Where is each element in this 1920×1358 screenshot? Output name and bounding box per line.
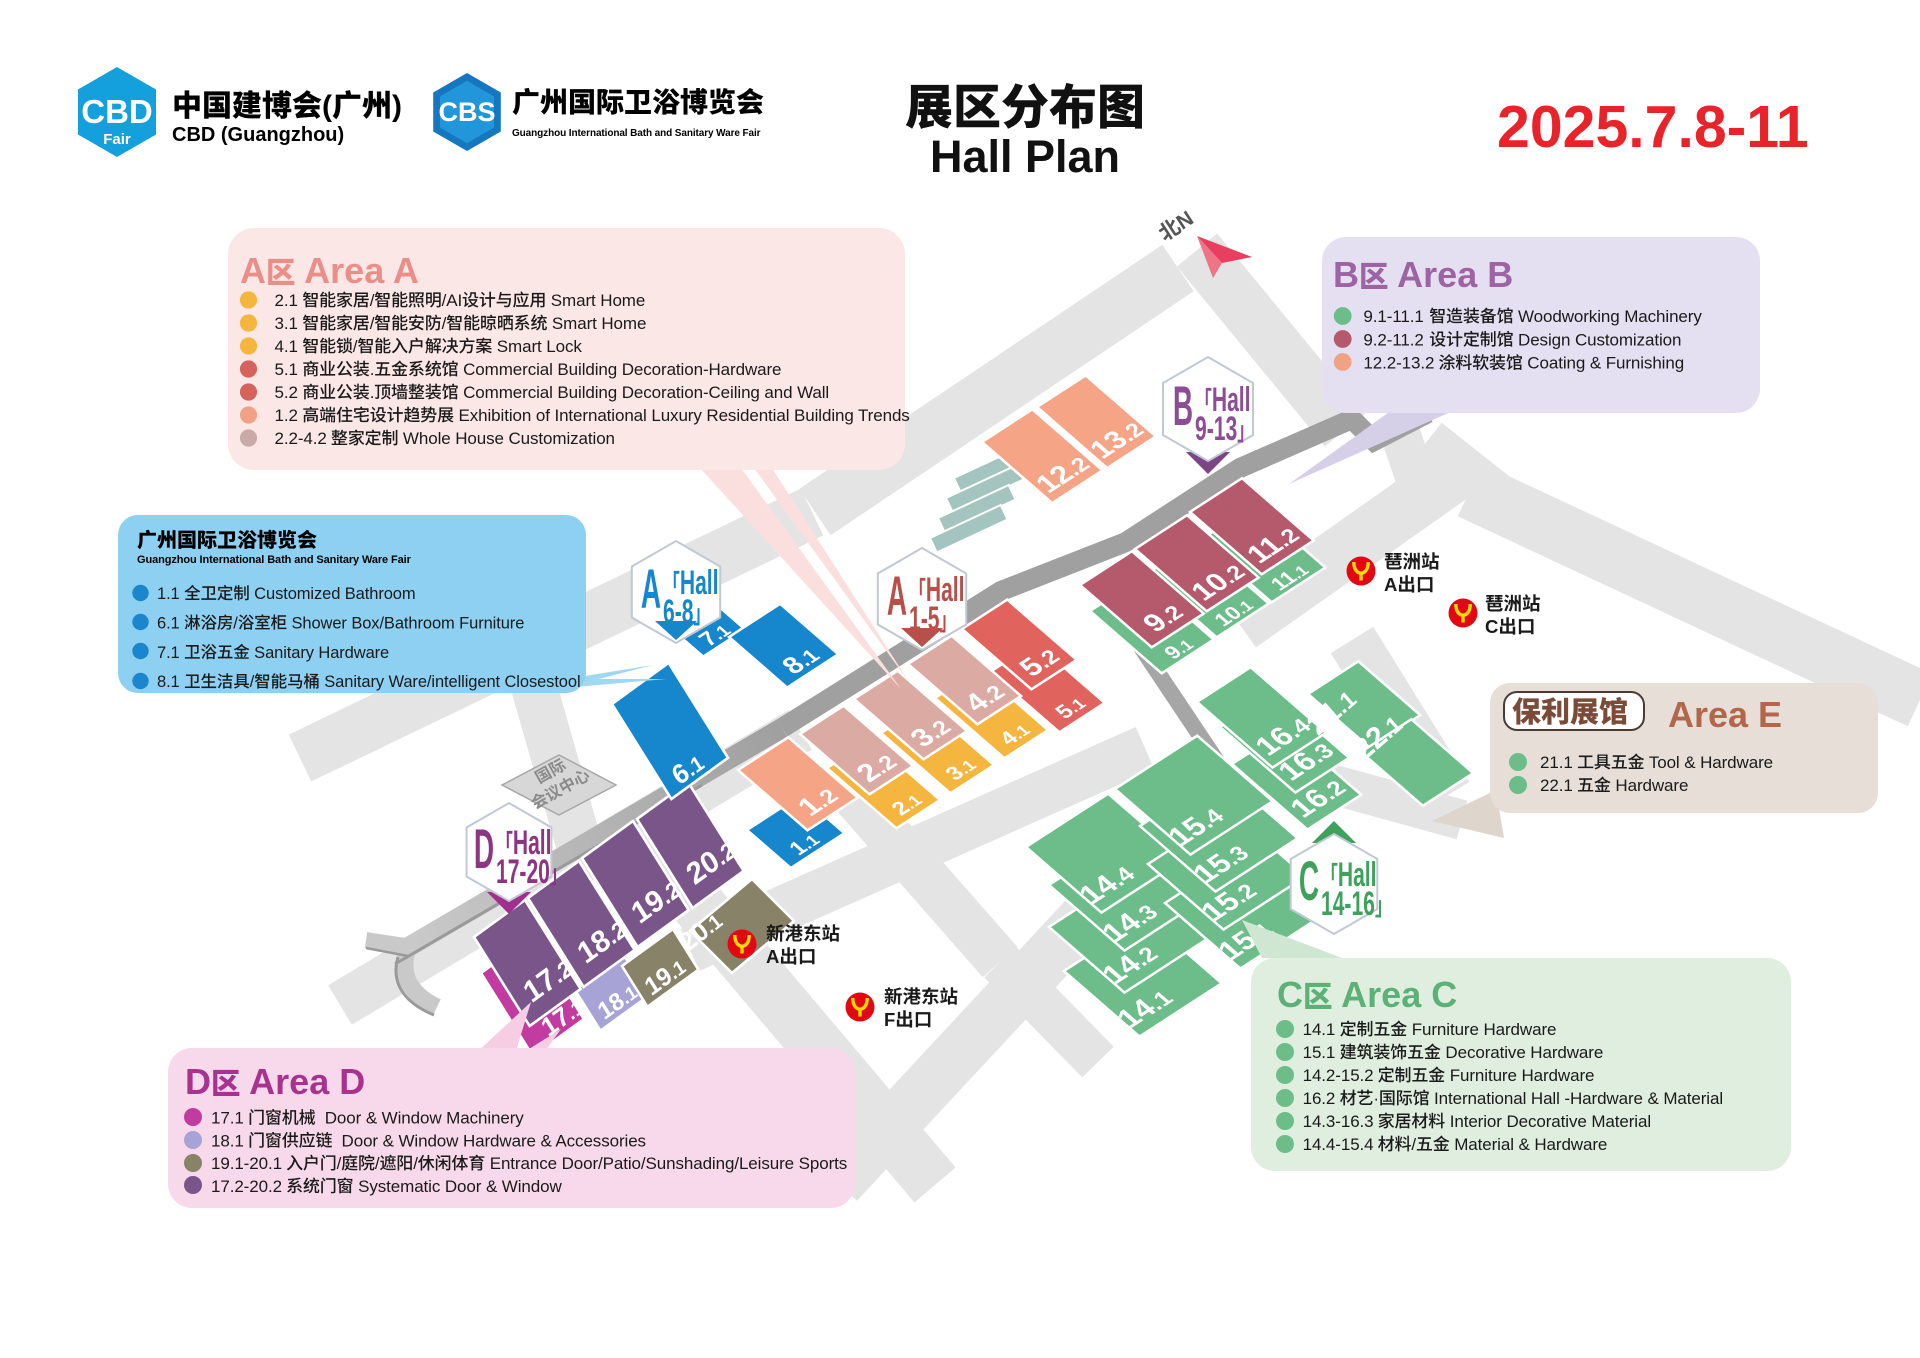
svg-text:22.1: 22.1 (1540, 776, 1577, 795)
svg-text:16.2: 16.2 (1303, 1089, 1340, 1108)
svg-text:Customized Bathroom: Customized Bathroom (250, 585, 416, 603)
svg-text:Area A: Area A (296, 250, 419, 291)
svg-text:12.2-13.2: 12.2-13.2 (1363, 354, 1439, 373)
svg-text:Door & Window Hardware & Acces: Door & Window Hardware & Accessories (332, 1131, 646, 1150)
svg-text:C: C (1299, 851, 1319, 913)
svg-text:Systematic Door & Window: Systematic Door & Window (354, 1177, 563, 1196)
svg-text:/: / (233, 614, 238, 632)
svg-text:14.4-15.4: 14.4-15.4 (1303, 1135, 1379, 1154)
svg-text:CBD: CBD (81, 93, 153, 130)
svg-text:Decorative Hardware: Decorative Hardware (1441, 1043, 1603, 1062)
svg-text:17.1: 17.1 (211, 1109, 248, 1128)
svg-text:Design Customization: Design Customization (1513, 330, 1681, 349)
svg-text:Hardware: Hardware (1611, 776, 1689, 795)
svg-text:D: D (185, 1061, 211, 1102)
svg-text:Tool & Hardware: Tool & Hardware (1645, 753, 1773, 772)
svg-text:14.3-16.3: 14.3-16.3 (1303, 1112, 1379, 1131)
svg-text:2.1: 2.1 (275, 291, 303, 310)
svg-text:Entrance Door/Patio/Sunshading: Entrance Door/Patio/Sunshading/Leisure S… (485, 1154, 847, 1173)
svg-text:·: · (1373, 1089, 1379, 1108)
svg-text:Guangzhou International Bath a: Guangzhou International Bath and Sanitar… (137, 554, 412, 566)
svg-text:CBD (Guangzhou): CBD (Guangzhou) (172, 124, 344, 146)
svg-text:A: A (240, 250, 266, 291)
svg-text:Shower Box/Bathroom Furniture: Shower Box/Bathroom Furniture (287, 614, 524, 632)
svg-text:Area D: Area D (241, 1061, 366, 1102)
svg-text:A: A (641, 559, 661, 621)
svg-text:A: A (1384, 574, 1397, 595)
svg-text:International Hall -Hardware &: International Hall -Hardware & Material (1429, 1089, 1723, 1108)
svg-text:5.1: 5.1 (275, 360, 303, 379)
svg-text:14-16: 14-16 (1321, 884, 1375, 922)
svg-text:): ) (392, 90, 402, 123)
svg-text:Whole House Customization: Whole House Customization (398, 429, 615, 448)
svg-text:Exhibition of International Lu: Exhibition of International Luxury Resid… (454, 406, 910, 425)
svg-text:3.1: 3.1 (275, 314, 303, 333)
svg-text:F: F (884, 1009, 895, 1030)
svg-text:Interior Decorative Material: Interior Decorative Material (1445, 1112, 1651, 1131)
svg-text:21.1: 21.1 (1540, 753, 1577, 772)
svg-text:Coating & Furnishing: Coating & Furnishing (1523, 354, 1684, 373)
svg-text:/: / (353, 337, 358, 356)
svg-text:5.2: 5.2 (275, 383, 303, 402)
svg-text:9.2-11.2: 9.2-11.2 (1363, 330, 1428, 349)
svg-text:/: / (337, 1154, 342, 1173)
svg-text:/: / (442, 314, 447, 333)
svg-text:D: D (474, 819, 494, 881)
svg-text:/: / (375, 1154, 380, 1173)
svg-text:B: B (1333, 254, 1359, 295)
svg-text:Area B: Area B (1389, 254, 1514, 295)
svg-text:Hall Plan: Hall Plan (930, 131, 1120, 182)
svg-text:A: A (766, 946, 779, 967)
svg-text:Woodworking Machinery: Woodworking Machinery (1513, 307, 1702, 326)
svg-text:1.1: 1.1 (157, 585, 184, 603)
svg-text:(: ( (322, 90, 332, 123)
svg-text:B: B (1173, 376, 1193, 438)
svg-text:19.1-20.1: 19.1-20.1 (211, 1154, 287, 1173)
svg-text:Material & Hardware: Material & Hardware (1450, 1135, 1608, 1154)
svg-text:Guangzhou International Bath a: Guangzhou International Bath and Sanitar… (512, 128, 761, 139)
svg-text:Furniture Hardware: Furniture Hardware (1445, 1066, 1594, 1085)
svg-text:Area C: Area C (1333, 974, 1458, 1015)
svg-text:/: / (1411, 1135, 1416, 1154)
svg-text:Smart Home: Smart Home (546, 291, 645, 310)
svg-text:Area E: Area E (1668, 694, 1782, 735)
svg-text:.: . (370, 360, 375, 379)
svg-text:Smart Home: Smart Home (547, 314, 646, 333)
svg-text:2025.7.8-11: 2025.7.8-11 (1497, 94, 1809, 160)
svg-text:14.1: 14.1 (1303, 1020, 1340, 1039)
svg-text:C: C (1277, 974, 1303, 1015)
svg-text:.: . (370, 383, 375, 402)
svg-text:14.2-15.2: 14.2-15.2 (1303, 1066, 1379, 1085)
svg-text:CBS: CBS (438, 97, 495, 127)
svg-text:17.2-20.2: 17.2-20.2 (211, 1177, 287, 1196)
svg-text:9-13: 9-13 (1195, 409, 1237, 447)
svg-text:2.2-4.2: 2.2-4.2 (275, 429, 332, 448)
svg-text:7.1: 7.1 (157, 644, 184, 662)
svg-text:Commercial Building Decoration: Commercial Building Decoration-Ceiling a… (459, 383, 830, 402)
svg-text:Door & Window Machinery: Door & Window Machinery (316, 1109, 525, 1128)
svg-text:C: C (1485, 616, 1498, 637)
svg-text:Sanitary Ware/intelligent Clos: Sanitary Ware/intelligent Closestool (320, 673, 581, 691)
svg-text:/: / (250, 673, 255, 691)
svg-text:15.1: 15.1 (1303, 1043, 1340, 1062)
svg-text:1.2: 1.2 (275, 406, 303, 425)
svg-text:/: / (370, 314, 375, 333)
svg-text:Sanitary Hardware: Sanitary Hardware (250, 644, 389, 662)
svg-text:Smart Lock: Smart Lock (492, 337, 582, 356)
svg-text:4.1: 4.1 (275, 337, 303, 356)
svg-text:9.1-11.1: 9.1-11.1 (1363, 307, 1428, 326)
svg-text:8.1: 8.1 (157, 673, 184, 691)
svg-text:6-8: 6-8 (663, 592, 693, 630)
svg-text:A: A (887, 566, 907, 628)
svg-text:1-5: 1-5 (909, 599, 939, 637)
svg-text:Furniture Hardware: Furniture Hardware (1407, 1020, 1556, 1039)
svg-text:Fair: Fair (103, 131, 131, 148)
svg-text:/: / (370, 291, 375, 310)
svg-text:17-20: 17-20 (496, 852, 550, 890)
svg-text:6.1: 6.1 (157, 614, 184, 632)
svg-text:18.1: 18.1 (211, 1131, 248, 1150)
svg-text:/AI: /AI (442, 291, 463, 310)
svg-text:Commercial Building Decoration: Commercial Building Decoration-Hardware (459, 360, 782, 379)
svg-text:/: / (413, 1154, 418, 1173)
